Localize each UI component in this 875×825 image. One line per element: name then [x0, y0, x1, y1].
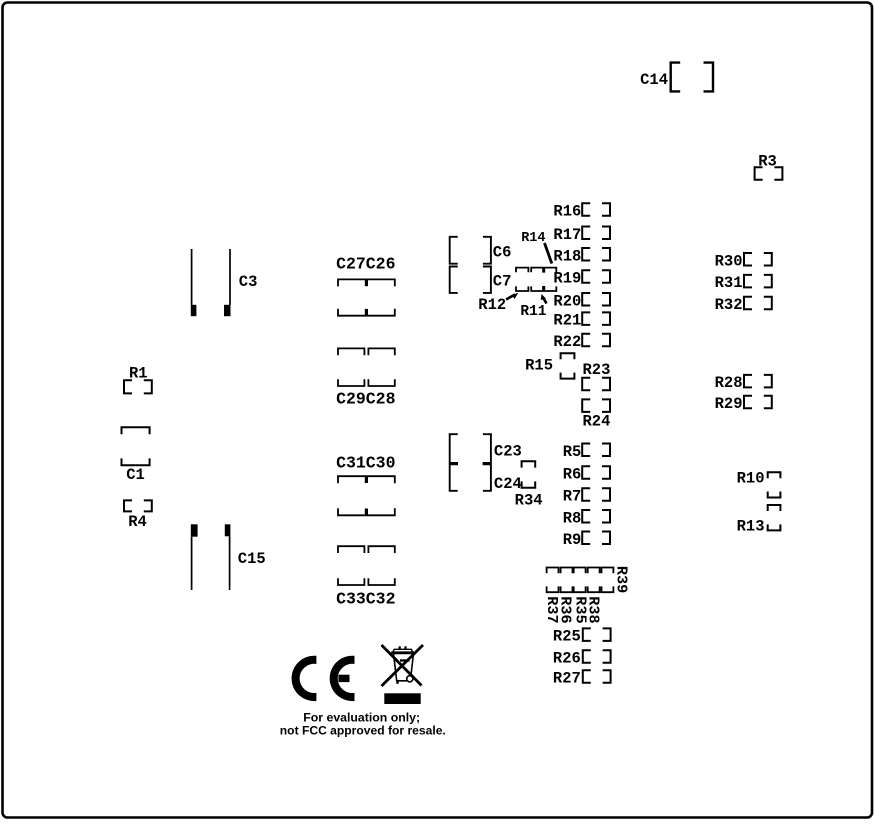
svg-text:R39: R39 — [612, 566, 630, 593]
svg-text:R9: R9 — [563, 531, 582, 549]
svg-text:R27: R27 — [553, 670, 581, 688]
svg-text:R15: R15 — [525, 357, 553, 375]
svg-text:R38: R38 — [584, 596, 602, 623]
svg-text:R20: R20 — [553, 292, 581, 310]
svg-text:C33C32: C33C32 — [336, 589, 395, 608]
svg-text:R14: R14 — [521, 231, 545, 246]
svg-text:C15: C15 — [238, 550, 266, 568]
svg-text:R21: R21 — [553, 312, 581, 330]
svg-text:R6: R6 — [563, 466, 582, 484]
svg-text:R10: R10 — [737, 469, 765, 487]
svg-text:not FCC approved for resale.: not FCC approved for resale. — [280, 723, 446, 737]
svg-text:C24: C24 — [494, 475, 522, 493]
svg-text:R16: R16 — [553, 203, 581, 221]
svg-text:R30: R30 — [715, 252, 743, 270]
svg-text:R28: R28 — [715, 374, 743, 392]
svg-text:R25: R25 — [553, 628, 581, 646]
svg-text:R29: R29 — [715, 395, 743, 413]
svg-text:C3: C3 — [239, 273, 258, 291]
svg-text:C27C26: C27C26 — [336, 255, 395, 274]
svg-text:For evaluation only;: For evaluation only; — [303, 710, 420, 724]
svg-text:R8: R8 — [563, 509, 582, 527]
svg-text:C1: C1 — [126, 466, 145, 484]
svg-text:R26: R26 — [553, 650, 581, 668]
svg-text:R5: R5 — [563, 443, 582, 461]
svg-text:R34: R34 — [515, 492, 543, 510]
svg-text:C7: C7 — [493, 273, 512, 291]
svg-text:R7: R7 — [563, 488, 582, 506]
svg-text:C23: C23 — [494, 442, 522, 460]
svg-text:R32: R32 — [715, 296, 743, 314]
svg-text:R4: R4 — [128, 513, 147, 531]
svg-text:R12: R12 — [478, 296, 506, 314]
svg-text:C6: C6 — [493, 243, 512, 261]
svg-text:R11: R11 — [520, 304, 546, 320]
svg-text:C14: C14 — [640, 71, 668, 89]
svg-text:C31C30: C31C30 — [336, 453, 395, 472]
svg-text:R23: R23 — [583, 361, 611, 379]
svg-text:R24: R24 — [583, 413, 611, 431]
svg-text:R18: R18 — [553, 247, 581, 265]
svg-text:R19: R19 — [553, 270, 581, 288]
svg-text:R22: R22 — [553, 333, 581, 351]
svg-text:R13: R13 — [737, 518, 765, 536]
svg-text:R31: R31 — [715, 274, 743, 292]
svg-text:R17: R17 — [553, 226, 581, 244]
svg-text:C29C28: C29C28 — [336, 389, 396, 408]
